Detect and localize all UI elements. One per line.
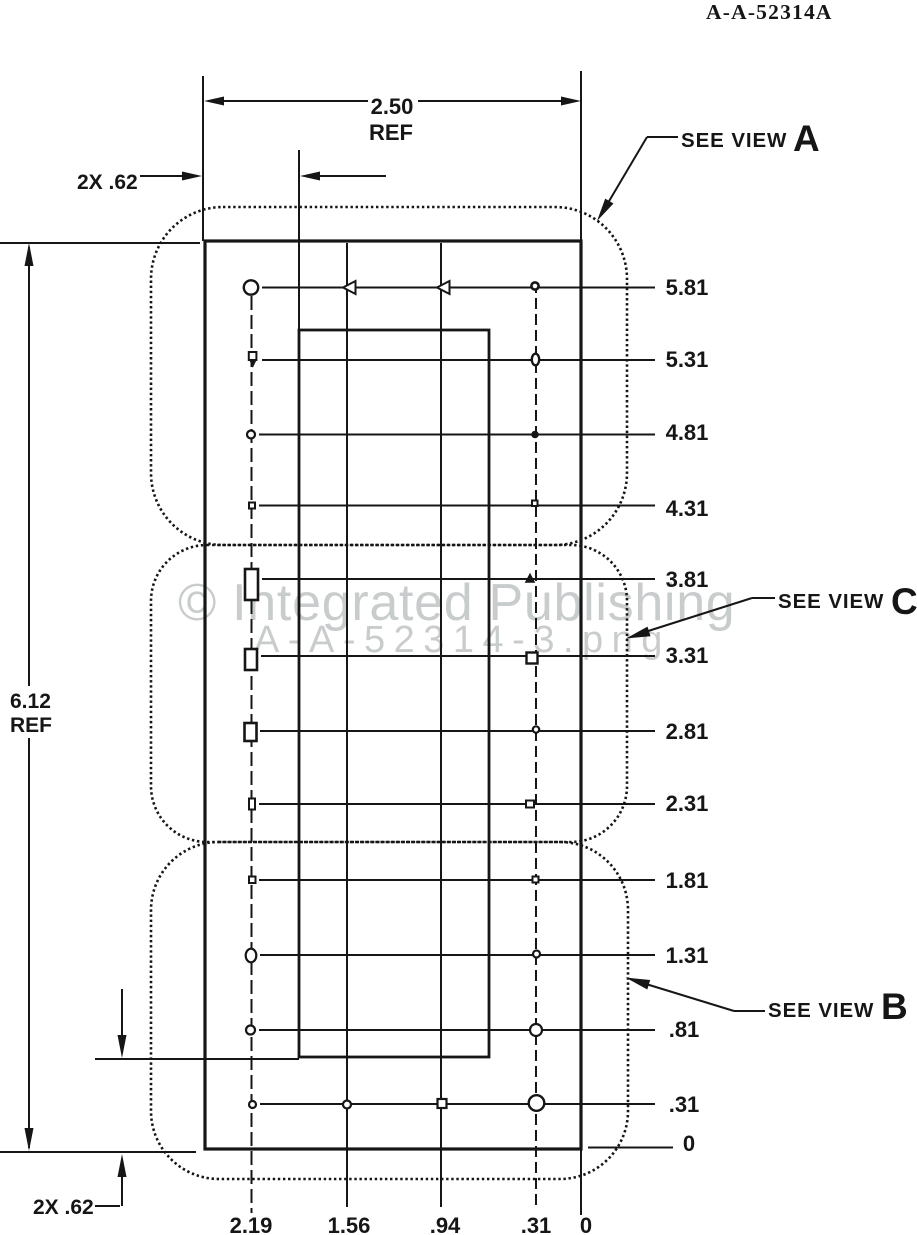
svg-text:SEE VIEW: SEE VIEW [768,999,874,1022]
svg-text:4.81: 4.81 [666,420,709,445]
svg-text:3.81: 3.81 [666,567,709,592]
svg-text:5.81: 5.81 [666,275,709,300]
svg-text:5.31: 5.31 [666,347,709,372]
svg-text:4.31: 4.31 [666,496,709,521]
svg-text:6.12: 6.12 [10,690,51,713]
svg-text:SEE VIEW: SEE VIEW [681,129,787,152]
svg-text:.31: .31 [669,1092,700,1117]
svg-text:2.31: 2.31 [666,791,709,816]
svg-text:3.31: 3.31 [666,643,709,668]
svg-text:A-A-52314-3.png: A-A-52314-3.png [254,619,671,661]
svg-text:2X .62: 2X .62 [77,171,138,194]
svg-text:B: B [881,986,908,1027]
svg-text:1.56: 1.56 [328,1213,371,1235]
svg-text:1.81: 1.81 [666,868,709,893]
svg-text:1.31: 1.31 [666,943,709,968]
svg-text:A: A [793,118,820,159]
svg-text:2.19: 2.19 [230,1213,273,1235]
svg-text:REF: REF [10,714,52,737]
svg-text:0: 0 [683,1131,695,1156]
svg-text:C: C [891,581,917,622]
svg-text:.81: .81 [669,1017,700,1042]
svg-text:SEE VIEW: SEE VIEW [778,590,884,613]
svg-text:.94: .94 [430,1213,461,1235]
svg-text:2.50: 2.50 [371,94,414,119]
svg-text:A-A-52314A: A-A-52314A [706,0,833,24]
svg-text:2X .62: 2X .62 [33,1196,94,1219]
svg-text:2.81: 2.81 [666,719,709,744]
svg-text:REF: REF [369,120,413,145]
svg-text:0: 0 [580,1213,592,1235]
svg-text:.31: .31 [521,1213,552,1235]
